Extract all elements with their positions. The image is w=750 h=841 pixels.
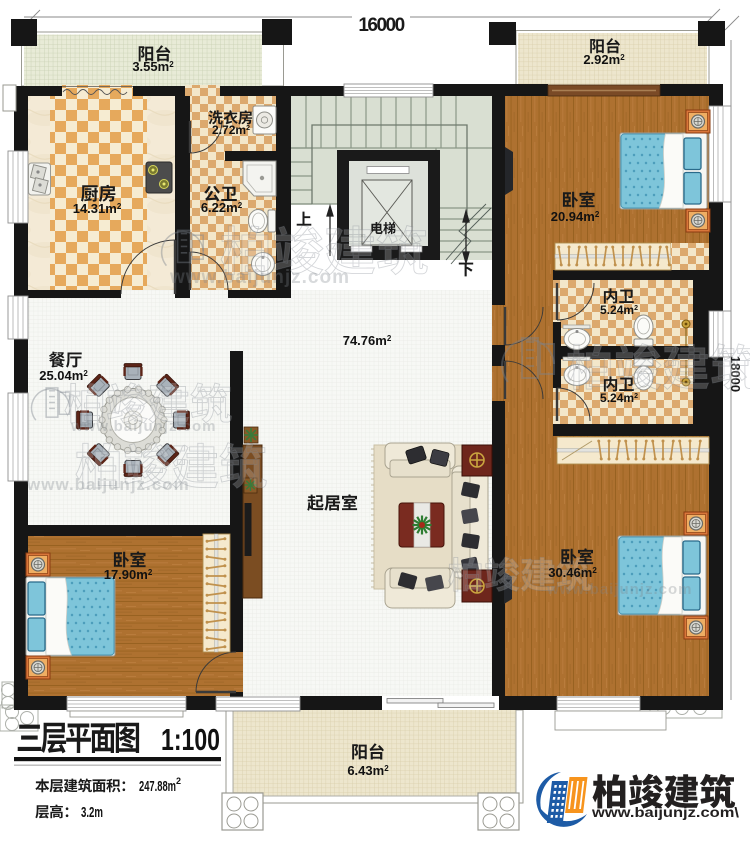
svg-text:247.88m: 247.88m xyxy=(139,778,176,795)
svg-text:25.04m2: 25.04m2 xyxy=(39,368,88,383)
svg-text:www.baijunjz.com: www.baijunjz.com xyxy=(546,581,692,598)
svg-text:5.24m2: 5.24m2 xyxy=(600,391,638,405)
svg-text:2.92m2: 2.92m2 xyxy=(583,52,625,67)
svg-text:6.22m2: 6.22m2 xyxy=(201,200,243,215)
svg-text:1:100: 1:100 xyxy=(161,722,220,757)
svg-text:5.24m2: 5.24m2 xyxy=(600,303,638,317)
svg-text:www.baijunjz.com: www.baijunjz.com xyxy=(26,475,190,494)
svg-text:17.90m2: 17.90m2 xyxy=(104,567,153,582)
svg-text:74.76m2: 74.76m2 xyxy=(343,333,392,348)
svg-text:20.94m2: 20.94m2 xyxy=(551,209,600,224)
svg-text:14.31m2: 14.31m2 xyxy=(73,201,122,216)
svg-text:2: 2 xyxy=(176,776,181,786)
svg-text:3.55m2: 3.55m2 xyxy=(132,59,174,74)
svg-text:www.baijunjz.com: www.baijunjz.com xyxy=(70,418,216,435)
svg-text:www.baijunjz.com\: www.baijunjz.com\ xyxy=(591,805,740,820)
svg-text:3.2m: 3.2m xyxy=(81,804,103,821)
svg-text:30.46m2: 30.46m2 xyxy=(548,565,597,580)
svg-text:2.72m2: 2.72m2 xyxy=(212,123,250,137)
svg-text:www.baijunjz.com: www.baijunjz.com xyxy=(169,267,350,288)
svg-text:6.43m2: 6.43m2 xyxy=(347,763,389,778)
svg-text:16000: 16000 xyxy=(358,15,404,36)
